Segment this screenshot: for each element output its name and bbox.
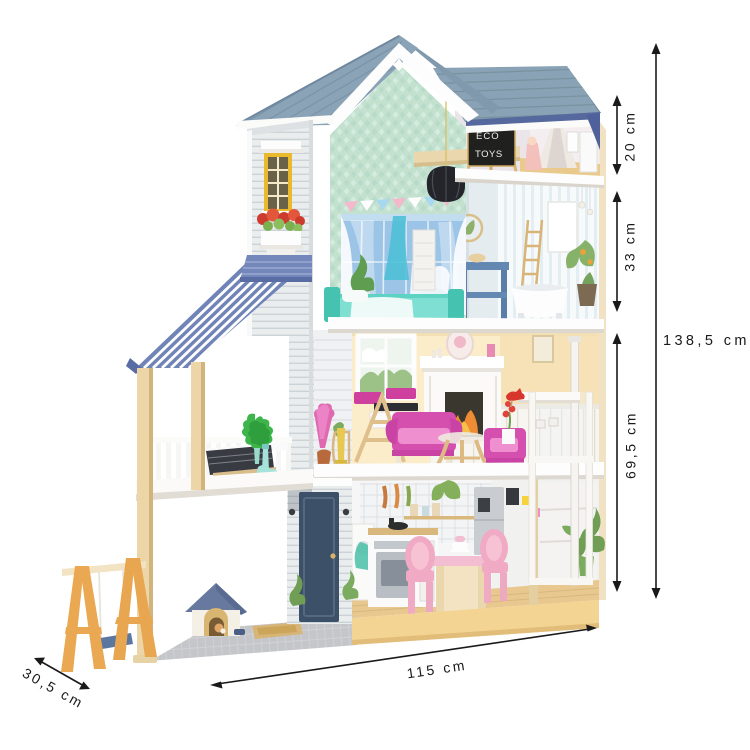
svg-text:69,5 cm: 69,5 cm [623, 411, 639, 479]
svg-text:ECO: ECO [476, 131, 500, 142]
svg-text:33 cm: 33 cm [622, 220, 638, 271]
svg-text:138,5 cm: 138,5 cm [663, 333, 750, 349]
svg-text:20 cm: 20 cm [622, 110, 638, 161]
svg-text:TOYS: TOYS [475, 149, 503, 160]
